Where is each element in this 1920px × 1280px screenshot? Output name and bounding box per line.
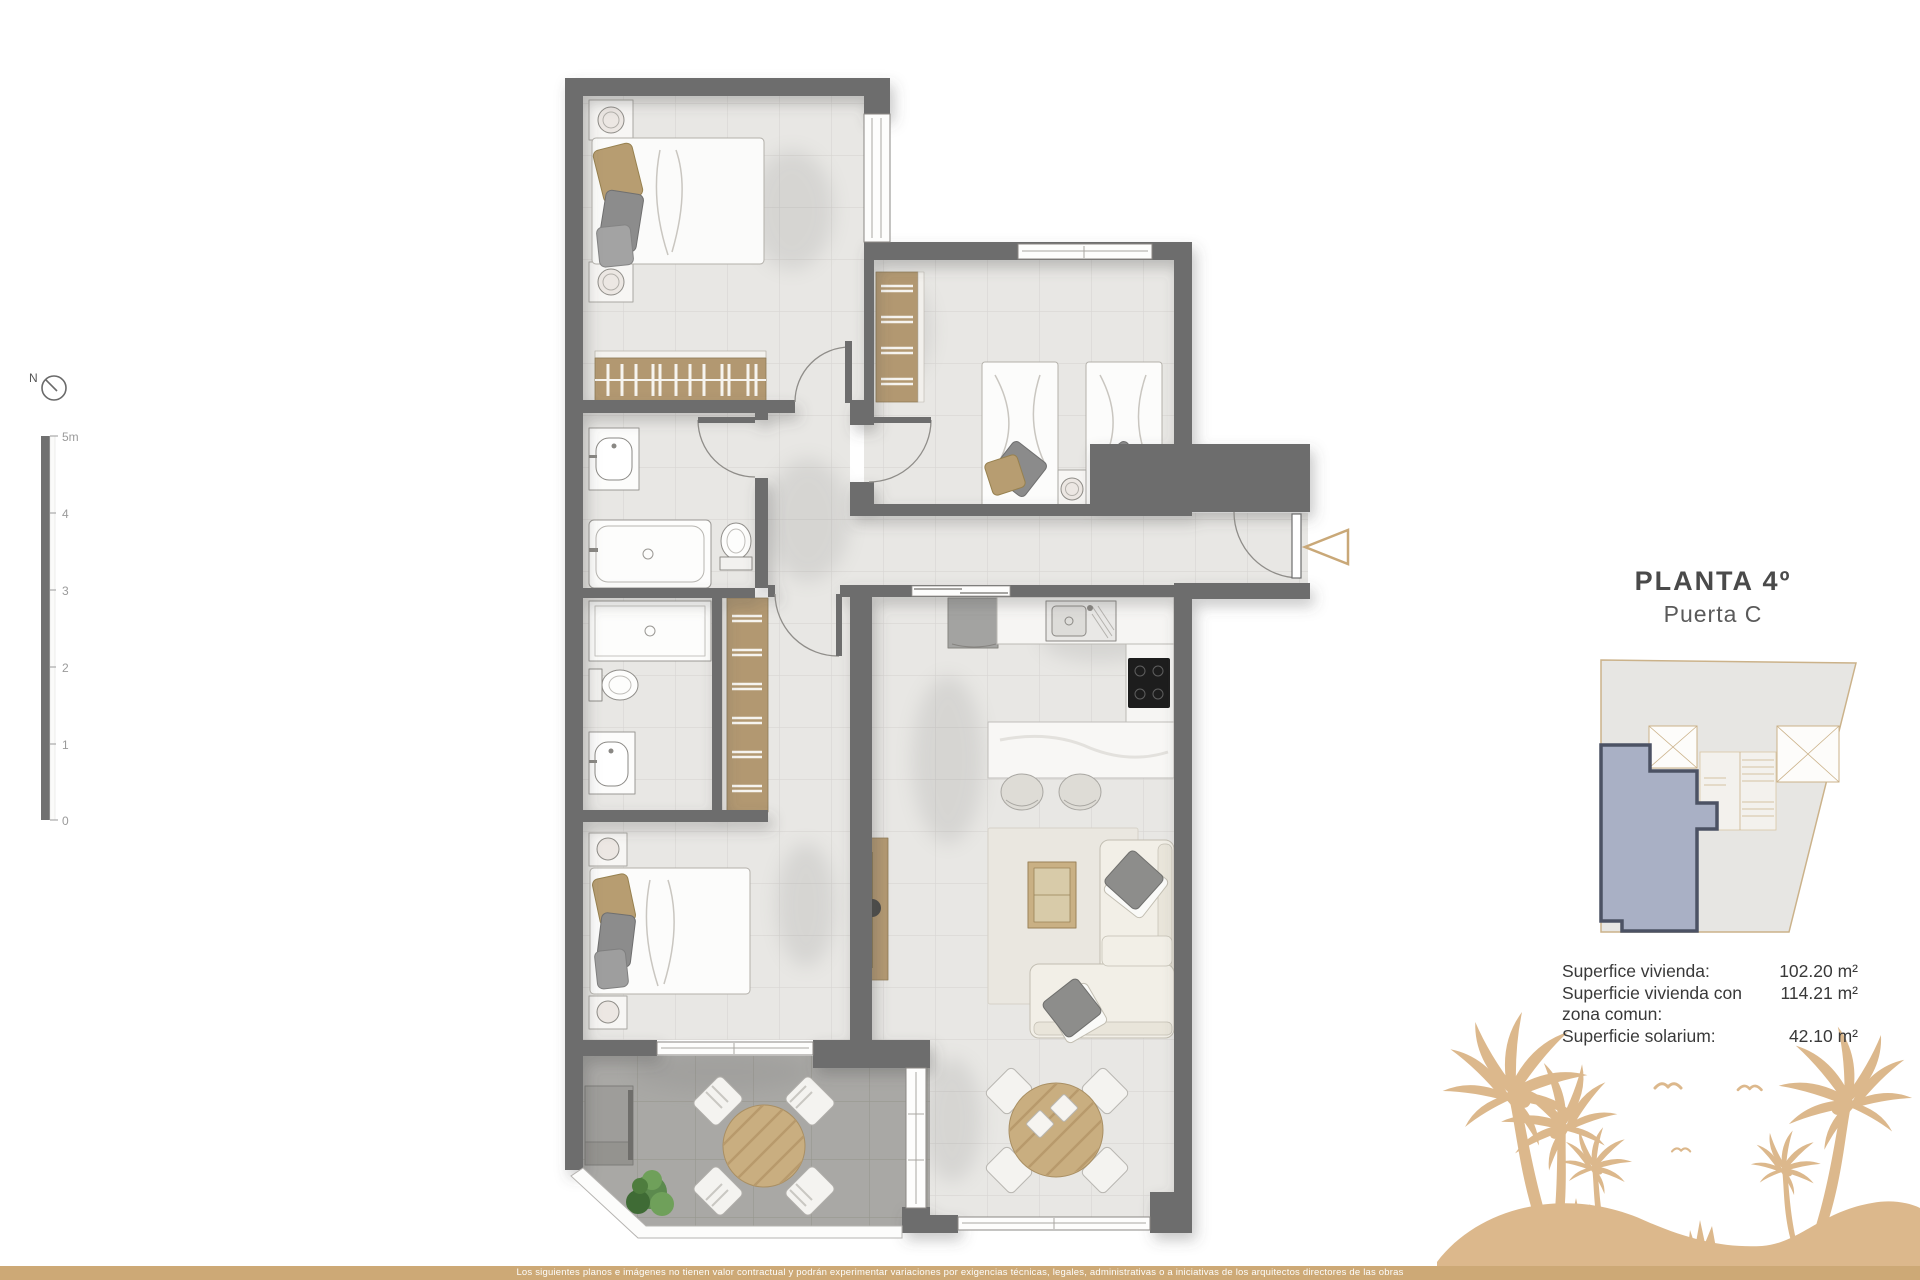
- scale-tick: 0: [62, 814, 69, 828]
- area-row: Superfice vivienda: 102.20 m²: [1562, 961, 1858, 982]
- palm-tree-icon: [1751, 1130, 1821, 1239]
- page: N 5m 4 3 2 1 0: [0, 0, 1920, 1280]
- seagull-icon: [1655, 1084, 1681, 1088]
- area-label: Superfice vivienda:: [1562, 961, 1768, 982]
- bedroom-3-nightstand: [589, 833, 627, 866]
- scale-tick: 1: [62, 738, 69, 752]
- area-label: Superficie solarium:: [1562, 1026, 1768, 1047]
- area-value: 102.20 m²: [1768, 961, 1858, 982]
- scale-tick: 5m: [62, 430, 79, 444]
- kitchen-island: [988, 722, 1174, 778]
- location-map: [1601, 660, 1856, 932]
- bedroom-3-wardrobe: [722, 598, 768, 812]
- area-value: 42.10 m²: [1768, 1026, 1858, 1047]
- area-row: Superficie vivienda con zona comun: 114.…: [1562, 983, 1858, 1025]
- floor-plan: N 5m 4 3 2 1 0: [0, 0, 1920, 1280]
- pillow: [594, 948, 629, 989]
- scale-tick: 2: [62, 661, 69, 675]
- window: [657, 1042, 813, 1055]
- lamp-icon: [597, 1001, 619, 1023]
- scale-tick: 4: [62, 507, 69, 521]
- bar-stool: [1001, 774, 1043, 810]
- seagull-icon: [1738, 1086, 1761, 1090]
- page-subtitle: Puerta C: [1597, 601, 1829, 628]
- courtyard: [1649, 726, 1697, 768]
- bedroom-1-bed: [592, 138, 764, 268]
- disclaimer-text: Los siguientes planos e imágenes no tien…: [0, 1266, 1920, 1280]
- window: [864, 114, 890, 242]
- window: [906, 1068, 926, 1208]
- bathtub: [589, 520, 711, 588]
- lamp-icon: [1061, 478, 1083, 500]
- shower-tray: [589, 601, 711, 661]
- toilet: [720, 523, 752, 570]
- north-indicator: N: [29, 371, 66, 400]
- sliding-door: [912, 586, 1010, 596]
- surface-areas: Superfice vivienda: 102.20 m² Superficie…: [1562, 961, 1858, 1048]
- bedroom-1-nightstand: [589, 262, 633, 302]
- bedroom-3-bed: [590, 868, 750, 994]
- page-title: PLANTA 4º: [1597, 566, 1829, 597]
- washbasin: [589, 428, 639, 490]
- area-label: Superficie vivienda con zona comun:: [1562, 983, 1768, 1025]
- bedroom-1-wardrobe: [595, 351, 766, 402]
- grass-tuft: [1688, 1220, 1716, 1248]
- disclaimer-bar: Los siguientes planos e imágenes no tien…: [0, 1266, 1920, 1280]
- kitchen-cabinet: [948, 598, 998, 648]
- terrace-storage: [585, 1086, 633, 1165]
- seagull-icon: [1672, 1148, 1690, 1151]
- lamp-icon: [598, 107, 624, 133]
- scale-bar: 5m 4 3 2 1 0: [41, 430, 79, 828]
- area-value: 114.21 m²: [1768, 983, 1858, 1004]
- cooktop: [1128, 658, 1170, 708]
- bedroom-2-nightstand: [1058, 470, 1086, 508]
- pillow: [596, 224, 634, 267]
- toilet: [589, 669, 638, 701]
- bar-stool: [1059, 774, 1101, 810]
- window: [958, 1217, 1150, 1230]
- kitchen-sink: [1046, 601, 1116, 641]
- bedroom-3-nightstand: [589, 996, 627, 1029]
- north-label: N: [29, 371, 38, 385]
- lamp-icon: [598, 269, 624, 295]
- plan-title-block: PLANTA 4º Puerta C: [1597, 566, 1829, 628]
- area-row: Superficie solarium: 42.10 m²: [1562, 1026, 1858, 1047]
- courtyard: [1777, 726, 1839, 782]
- bedroom-2-bed: [982, 362, 1058, 509]
- window: [1018, 244, 1152, 259]
- scale-tick: 3: [62, 584, 69, 598]
- bedroom-2-wardrobe: [876, 272, 924, 402]
- coffee-table: [1028, 862, 1076, 928]
- bedroom-1-nightstand: [589, 100, 633, 140]
- lamp-icon: [597, 838, 619, 860]
- entrance-arrow-icon: [1305, 530, 1348, 564]
- washbasin: [589, 732, 635, 794]
